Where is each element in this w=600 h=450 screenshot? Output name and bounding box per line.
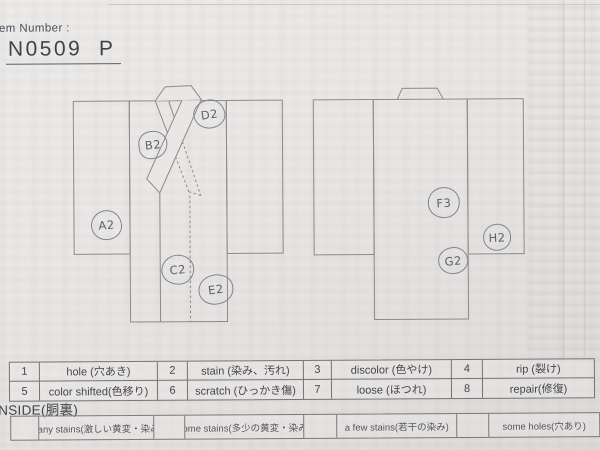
inside-option-label: a few stains(若干の染み) <box>337 414 457 438</box>
code-number-cell: 4 <box>452 360 483 379</box>
code-number-cell: 1 <box>10 363 40 382</box>
inside-checkbox-cell[interactable] <box>11 417 39 440</box>
code-number-cell: 2 <box>158 362 188 381</box>
inside-condition-table: many stains(激しい黄変・染み) some stains(多少の黄変・… <box>10 412 600 441</box>
damage-mark-label: F3 <box>436 195 452 210</box>
damage-mark-label: H2 <box>488 230 506 245</box>
back-left-sleeve <box>313 100 374 255</box>
item-number-label: Item Number : <box>0 22 70 34</box>
inside-option-label: many stains(激しい黄変・染み) <box>39 416 154 440</box>
code-label-cell: rip (裂け) <box>483 359 594 379</box>
inspection-sheet: Item Number : N0509 P <box>0 0 600 450</box>
item-number-underline <box>6 63 121 65</box>
damage-mark-label: A2 <box>98 218 115 233</box>
inside-checkbox-cell[interactable] <box>457 414 489 437</box>
inside-option-label: some holes(穴あり) <box>489 413 599 437</box>
code-number-cell: 3 <box>304 361 332 380</box>
inside-option-label: some stains(多少の黄変・染み) <box>185 415 304 439</box>
kimono-back-diagram <box>309 81 528 327</box>
code-number-cell: 6 <box>158 381 188 400</box>
damage-mark-label: E2 <box>207 282 224 298</box>
kimono-front-diagram <box>69 82 288 328</box>
code-number-cell: 8 <box>452 379 483 398</box>
damage-mark-label: G2 <box>444 253 462 269</box>
item-number-value: N0509 P <box>8 37 116 62</box>
code-label-cell: repair(修復) <box>483 378 594 398</box>
code-label-cell: hole (穴あき) <box>40 362 158 382</box>
code-label-cell: loose (ほつれ) <box>332 379 452 399</box>
code-number-cell: 7 <box>304 380 332 399</box>
front-overlap-seam <box>160 193 161 322</box>
code-label-cell: discolor (色やけ) <box>332 360 452 380</box>
inside-checkbox-cell[interactable] <box>154 416 185 439</box>
front-right-sleeve <box>226 100 283 253</box>
back-collar <box>397 88 443 99</box>
condition-codes-table: 1 hole (穴あき) 2 stain (染み、汚れ) 3 discolor … <box>9 358 595 402</box>
damage-mark-label: D2 <box>200 106 219 122</box>
code-label-cell: stain (染み、汚れ) <box>188 361 304 381</box>
code-label-cell: scratch (ひっかき傷) <box>188 380 304 400</box>
inside-checkbox-cell[interactable] <box>304 415 337 438</box>
damage-mark-label: B2 <box>144 137 162 153</box>
damage-mark-label: C2 <box>169 262 187 277</box>
